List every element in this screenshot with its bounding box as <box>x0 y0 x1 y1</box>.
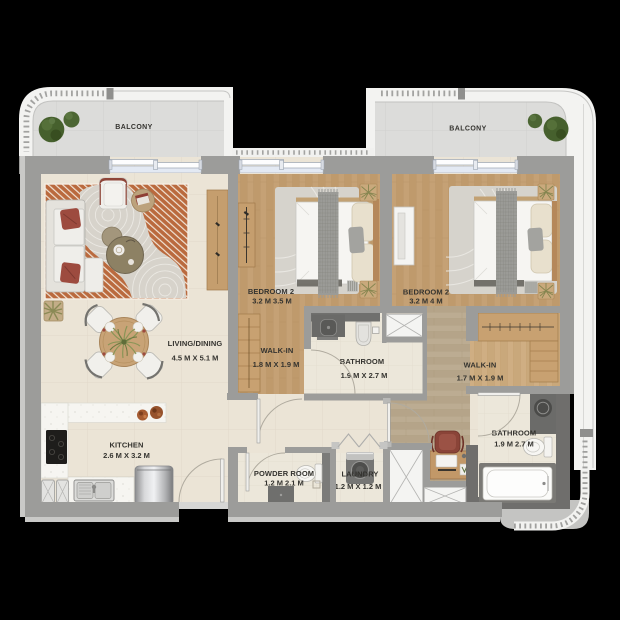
svg-text:1.8 M X 1.9 M: 1.8 M X 1.9 M <box>253 360 300 369</box>
svg-text:3.2 M 3.5 M: 3.2 M 3.5 M <box>252 297 292 306</box>
svg-text:LAUNDRY: LAUNDRY <box>341 470 378 479</box>
svg-text:BALCONY: BALCONY <box>449 126 486 133</box>
svg-text:1.2 M X 1.2 M: 1.2 M X 1.2 M <box>335 482 382 491</box>
svg-text:2.6 M X 3.2 M: 2.6 M X 3.2 M <box>103 451 150 460</box>
svg-text:POWDER ROOM: POWDER ROOM <box>254 469 314 478</box>
svg-text:1.9 M X 2.7 M: 1.9 M X 2.7 M <box>341 371 388 380</box>
svg-text:WALK-IN: WALK-IN <box>261 346 294 355</box>
svg-text:BATHROOM: BATHROOM <box>492 429 536 438</box>
svg-text:WALK-IN: WALK-IN <box>464 361 497 370</box>
svg-text:BEDROOM 2: BEDROOM 2 <box>248 287 294 296</box>
svg-text:KITCHEN: KITCHEN <box>109 441 143 450</box>
svg-text:3.2 M 4 M: 3.2 M 4 M <box>409 297 442 306</box>
svg-text:1.7 M X 1.9 M: 1.7 M X 1.9 M <box>457 374 504 383</box>
svg-text:LIVING/DINING: LIVING/DINING <box>168 339 223 348</box>
svg-text:1.9 M 2.7 M: 1.9 M 2.7 M <box>494 440 534 449</box>
svg-text:1.2 M 2.1 M: 1.2 M 2.1 M <box>264 479 304 488</box>
svg-text:BATHROOM: BATHROOM <box>340 357 384 366</box>
svg-text:4.5 M X 5.1 M: 4.5 M X 5.1 M <box>172 354 219 363</box>
svg-text:BALCONY: BALCONY <box>115 124 152 131</box>
svg-text:BEDROOM 2: BEDROOM 2 <box>403 288 449 297</box>
